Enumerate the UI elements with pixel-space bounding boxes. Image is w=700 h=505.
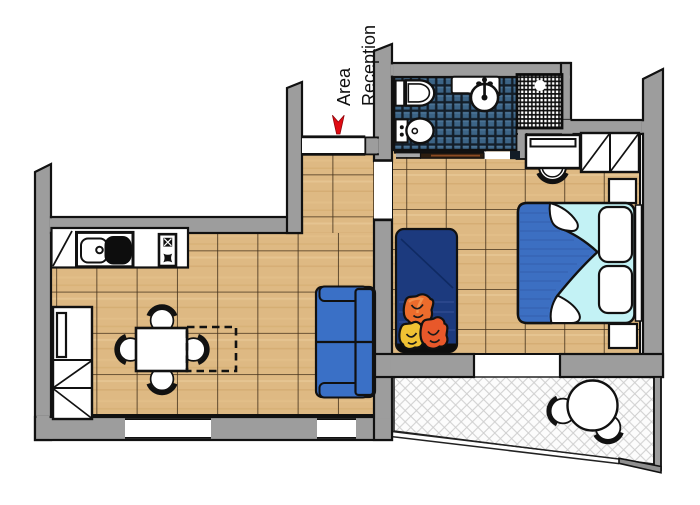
svg-text:Area: Area: [334, 67, 354, 106]
svg-text:Reception: Reception: [359, 25, 379, 106]
